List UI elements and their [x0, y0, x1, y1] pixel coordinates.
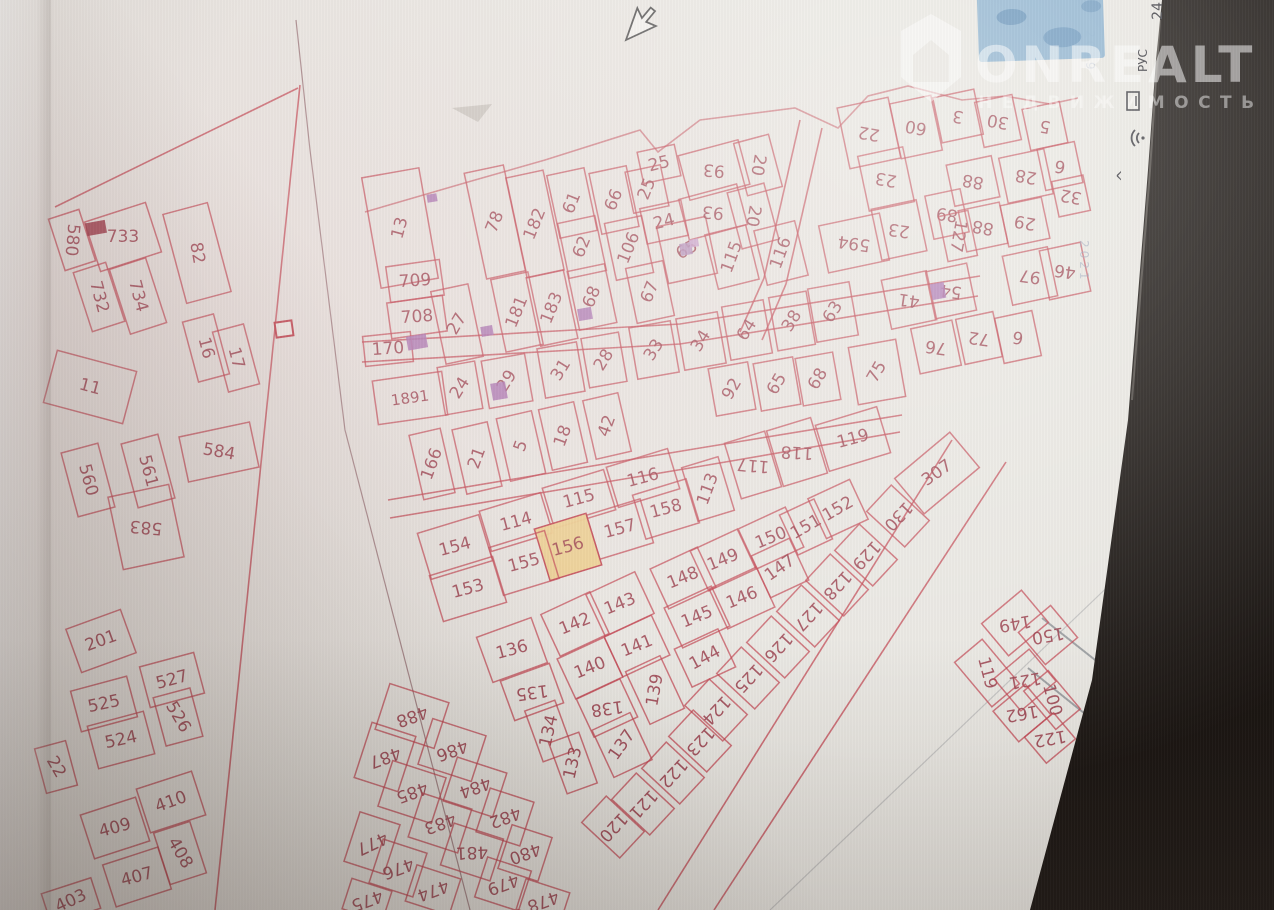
parcel-label-135: 135: [515, 680, 550, 704]
road-line: [55, 88, 298, 207]
language-indicator[interactable]: РУС: [1136, 49, 1150, 72]
house-shield-icon: [901, 14, 961, 102]
parcel-label-474: 474: [414, 875, 451, 905]
parcel-label-584: 584: [201, 439, 236, 464]
parcels-layer: 1370970817018912724293128333464386392656…: [35, 89, 1091, 910]
parcel-label-28: 28: [590, 346, 618, 375]
parcel-label-140: 140: [571, 653, 609, 684]
building-marker: [426, 193, 437, 203]
parcel-label-583: 583: [129, 516, 163, 539]
parcel-label-46: 46: [1053, 260, 1077, 283]
parcel-label-11: 11: [77, 375, 103, 400]
taskbar-clock[interactable]: 24: [1150, 2, 1166, 20]
parcel-label-486: 486: [433, 735, 470, 765]
map-square-marker: [275, 320, 294, 337]
registry-watermark: 2021: [1077, 240, 1091, 283]
parcel-label-22: 22: [42, 753, 70, 782]
parcel-label-524: 524: [103, 727, 139, 753]
parcel-label-119: 119: [973, 655, 1001, 692]
building-marker: [490, 381, 508, 400]
parcel-label-149: 149: [997, 610, 1032, 635]
parcel-label-733: 733: [107, 227, 139, 247]
parcel-label-13: 13: [388, 215, 413, 241]
parcel-label-32: 32: [1059, 184, 1084, 207]
parcel-label-88: 88: [961, 169, 986, 192]
parcel-label-24: 24: [651, 210, 677, 235]
parcel-label-20: 20: [746, 153, 769, 178]
road-line: [714, 462, 1006, 910]
parcel-label-78: 78: [482, 208, 509, 236]
parcel-label-155: 155: [506, 549, 543, 577]
parcel-label-22: 22: [857, 121, 882, 144]
parcel-label-64: 64: [733, 316, 761, 345]
parcel-label-117: 117: [736, 454, 770, 477]
parcel-label-113: 113: [693, 470, 723, 507]
cadastral-map[interactable]: 1370970817018912724293128333464386392656…: [0, 0, 1274, 910]
screen-smudge: [452, 104, 492, 122]
parcel-label-106: 106: [614, 229, 645, 267]
parcel-label-24: 24: [446, 374, 474, 403]
parcel-label-481: 481: [455, 841, 488, 862]
road-line: [365, 86, 1078, 212]
parcel-label-114: 114: [498, 508, 535, 536]
parcel-label-42: 42: [594, 412, 620, 439]
parcel-label-31: 31: [547, 356, 575, 385]
parcel-label-709: 709: [398, 270, 432, 292]
parcel-label-41: 41: [897, 289, 921, 312]
parcel-label-525: 525: [86, 691, 122, 717]
parcel-label-145: 145: [678, 602, 716, 633]
mouse-cursor: [616, 2, 661, 40]
parcel-label-88: 88: [971, 215, 996, 238]
parcel-label-116: 116: [766, 234, 796, 271]
parcel-label-6: 6: [1011, 326, 1025, 347]
parcel-label-136: 136: [494, 636, 531, 664]
parcel-label-34: 34: [687, 327, 715, 356]
parcel-label-67: 67: [637, 278, 664, 306]
parcel-label-485: 485: [393, 777, 430, 807]
building-marker: [689, 238, 699, 247]
parcel-label-409: 409: [97, 814, 134, 842]
parcel-label-142: 142: [556, 609, 594, 640]
parcel-label-33: 33: [640, 336, 668, 365]
watermark-subtitle: НЕДВИЖИМОСТЬ: [978, 93, 1264, 113]
parcel-label-62: 62: [569, 233, 596, 261]
building-marker: [85, 220, 107, 236]
screen-photo: 1370970817018912724293128333464386392656…: [0, 0, 1274, 910]
road-line: [215, 85, 300, 910]
parcel-label-478: 478: [524, 886, 561, 910]
parcel-label-153: 153: [450, 575, 487, 603]
parcel-label-157: 157: [602, 515, 639, 543]
parcel-label-483: 483: [421, 808, 458, 838]
parcel-label-27: 27: [443, 310, 471, 339]
parcel-label-477: 477: [353, 827, 391, 859]
parcel-label-118: 118: [780, 441, 813, 463]
parcel-label-480: 480: [506, 838, 543, 868]
parcel-label-182: 182: [520, 205, 551, 243]
parcel-label-475: 475: [348, 885, 385, 910]
parcel-label-561: 561: [134, 453, 162, 490]
parcel-label-482: 482: [486, 802, 523, 832]
parcel-label-92: 92: [718, 375, 746, 404]
parcel-label-170: 170: [371, 338, 405, 360]
building-marker: [480, 325, 494, 337]
parcel-label-143: 143: [601, 589, 639, 620]
parcel-label-38: 38: [778, 307, 806, 336]
parcel-label-82: 82: [185, 241, 208, 266]
parcel-label-5: 5: [510, 437, 532, 454]
parcel-label-93: 93: [701, 201, 724, 223]
parcel-label-154: 154: [437, 533, 474, 561]
chevron-up-icon[interactable]: ^: [1114, 169, 1132, 182]
parcel-label-408: 408: [163, 834, 197, 872]
parcel-label-488: 488: [393, 701, 430, 731]
roads-layer: [55, 20, 1128, 910]
parcel-label-708: 708: [400, 306, 434, 328]
parcel-label-407: 407: [119, 863, 156, 891]
parcel-label-476: 476: [379, 853, 416, 883]
parcel-label-150: 150: [752, 523, 790, 554]
parcel-label-18: 18: [550, 422, 576, 449]
parcel-label-149: 149: [704, 545, 742, 576]
parcel-label-166: 166: [417, 445, 447, 482]
parcel-label-21: 21: [464, 444, 490, 471]
parcel-label-138: 138: [590, 696, 625, 720]
parcel-label-560: 560: [74, 462, 102, 499]
parcel-label-3: 3: [951, 105, 965, 127]
parcel-label-122: 122: [1032, 725, 1067, 750]
parcel-label-72: 72: [967, 327, 991, 350]
parcel-label-75: 75: [863, 358, 891, 387]
parcel-label-146: 146: [723, 583, 761, 614]
parcel-label-97: 97: [1018, 265, 1042, 288]
parcel-label-734: 734: [124, 278, 152, 315]
parcel-label-148: 148: [664, 563, 702, 594]
parcel-label-410: 410: [152, 787, 189, 817]
parcel-label-144: 144: [686, 642, 724, 675]
parcel-label-68: 68: [804, 365, 832, 394]
parcel-label-151: 151: [787, 510, 825, 544]
parcel-label-25: 25: [646, 152, 672, 177]
parcel-label-479: 479: [484, 869, 521, 899]
parcel-label-66: 66: [601, 186, 628, 214]
parcel-label-5: 5: [1038, 115, 1052, 137]
parcel-label-60: 60: [904, 115, 929, 138]
parcel-label-594: 594: [837, 231, 872, 255]
parcel-label-133: 133: [560, 745, 587, 781]
parcel-label-61: 61: [559, 189, 586, 217]
parcel-label-93: 93: [702, 159, 725, 181]
parcel-label-119: 119: [835, 425, 872, 453]
parcel-label-29: 29: [1013, 210, 1038, 233]
parcel-label-580: 580: [61, 223, 84, 257]
parcel-label-28: 28: [1014, 164, 1039, 187]
wifi-icon[interactable]: [1132, 130, 1145, 146]
parcel-label-65: 65: [763, 370, 791, 399]
parcel-label-1891: 1891: [390, 386, 430, 409]
parcel-label-181: 181: [502, 293, 533, 331]
parcel-label-141: 141: [618, 631, 656, 662]
parcel-label-76: 76: [924, 336, 948, 359]
parcel-label-115: 115: [717, 238, 747, 275]
building-marker: [930, 282, 947, 300]
parcel-label-484: 484: [456, 772, 493, 802]
parcel-label-487: 487: [366, 742, 403, 772]
parcel-label-137: 137: [605, 726, 640, 764]
parcel-label-201: 201: [82, 626, 119, 656]
watermark-brand: ONREALT: [975, 36, 1256, 94]
parcel-label-25: 25: [634, 175, 661, 203]
parcel-label-732: 732: [85, 279, 113, 316]
parcel-label-158: 158: [648, 495, 685, 523]
parcel-label-150: 150: [1030, 622, 1065, 647]
parcel-label-147: 147: [761, 551, 799, 586]
building-marker: [577, 307, 593, 321]
parcel-label-23: 23: [887, 219, 911, 242]
parcel-label-23: 23: [874, 167, 899, 190]
parcel-label-139: 139: [642, 672, 667, 707]
parcel-label-6: 6: [1053, 155, 1067, 177]
parcel-label-68: 68: [579, 283, 606, 311]
parcel-label-183: 183: [537, 289, 568, 327]
